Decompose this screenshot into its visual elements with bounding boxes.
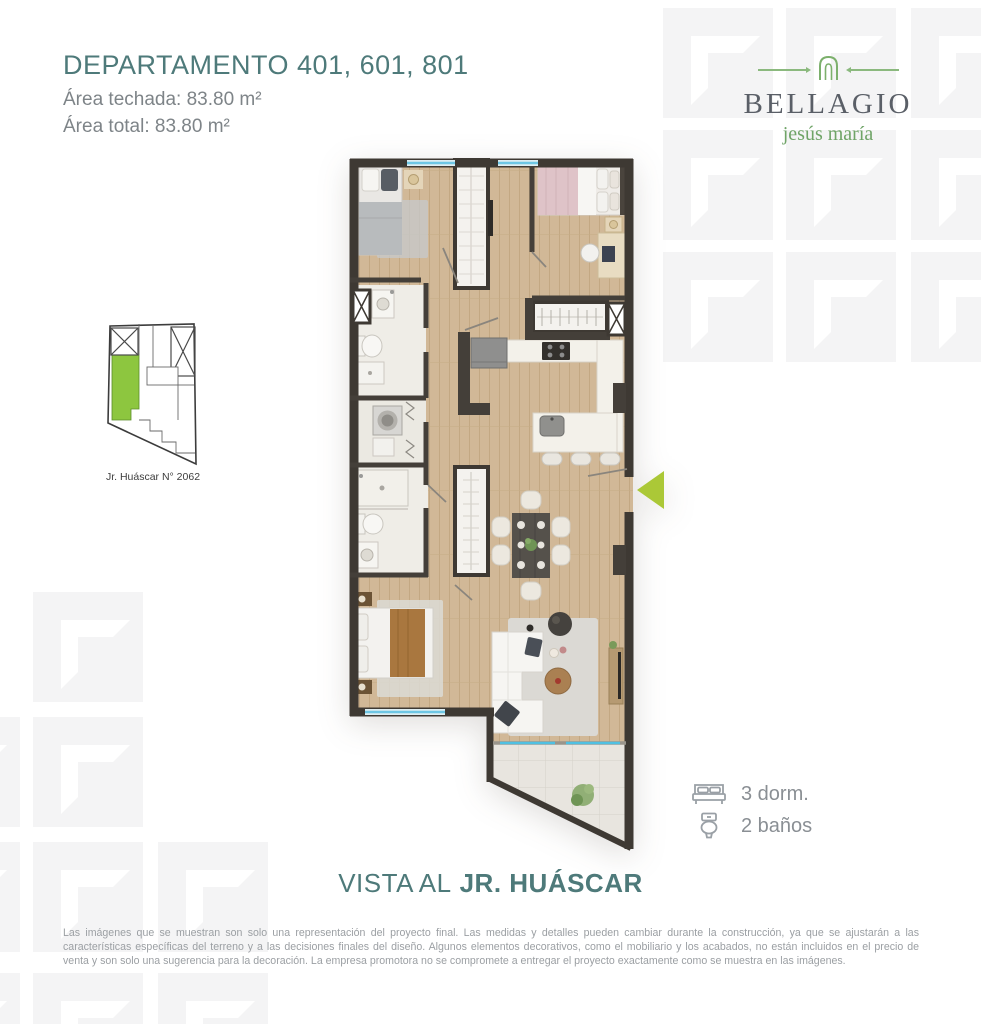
bg-tile (786, 130, 896, 240)
spec-bedrooms: 3 dorm. (690, 782, 812, 806)
bedrooms-label: 3 dorm. (741, 783, 809, 806)
toilet-icon (690, 812, 728, 840)
page-title: DEPARTAMENTO 401, 601, 801 (63, 50, 469, 81)
vista-prefix: VISTA AL (338, 868, 451, 898)
terrace-floor (488, 743, 629, 847)
pouf (548, 612, 572, 636)
closet-1 (455, 160, 493, 288)
stool (600, 453, 620, 465)
bg-tile (33, 973, 143, 1024)
ornament-line-left (758, 67, 811, 73)
vista-street: JR. HUÁSCAR (460, 868, 643, 898)
closet-3 (533, 302, 607, 332)
bg-tile (911, 252, 981, 362)
stove (542, 342, 570, 360)
tv (618, 652, 621, 699)
laptop (602, 246, 615, 262)
tv-panel (488, 200, 493, 236)
entrance-arrow-icon (637, 471, 664, 509)
stool (571, 453, 591, 465)
disclaimer-text: Las imágenes que se muestran son solo un… (63, 926, 919, 968)
keymap-address: Jr. Huáscar N° 2062 (88, 471, 218, 483)
bg-tile (158, 973, 268, 1024)
entry-column (613, 545, 626, 575)
ornament-line-right (846, 67, 899, 73)
logo-ornament (723, 55, 933, 85)
spec-bathrooms: 2 baños (690, 812, 812, 840)
bg-tile (786, 252, 896, 362)
unit-specs: 3 dorm. 2 baños (690, 782, 812, 846)
area-techada: Área techada: 83.80 m² (63, 87, 469, 113)
stool (542, 453, 562, 465)
brand-name: BELLAGIO (723, 88, 933, 121)
desk-chair (581, 244, 599, 262)
area-total: Área total: 83.80 m² (63, 114, 469, 140)
bed-icon (690, 782, 728, 806)
floor-plan (330, 140, 680, 860)
master-bedroom (352, 592, 443, 697)
closet-2 (455, 467, 488, 575)
arch-icon (817, 54, 840, 86)
brand-district: jesús maría (723, 123, 933, 146)
bg-tile (911, 130, 981, 240)
key-map (98, 322, 208, 477)
bg-tile (0, 717, 20, 827)
brochure-page: DEPARTAMENTO 401, 601, 801 Área techada:… (0, 0, 981, 1024)
bg-tile (0, 973, 20, 1024)
brand-logo: BELLAGIO jesús maría (723, 55, 933, 146)
bg-tile (33, 717, 143, 827)
header: DEPARTAMENTO 401, 601, 801 Área techada:… (63, 50, 469, 139)
vista-heading: VISTA ALJR. HUÁSCAR (0, 868, 981, 899)
bathrooms-label: 2 baños (741, 815, 812, 838)
bg-tile (33, 592, 143, 702)
gray-cabinet (471, 338, 507, 368)
bedroom-1 (359, 166, 428, 258)
